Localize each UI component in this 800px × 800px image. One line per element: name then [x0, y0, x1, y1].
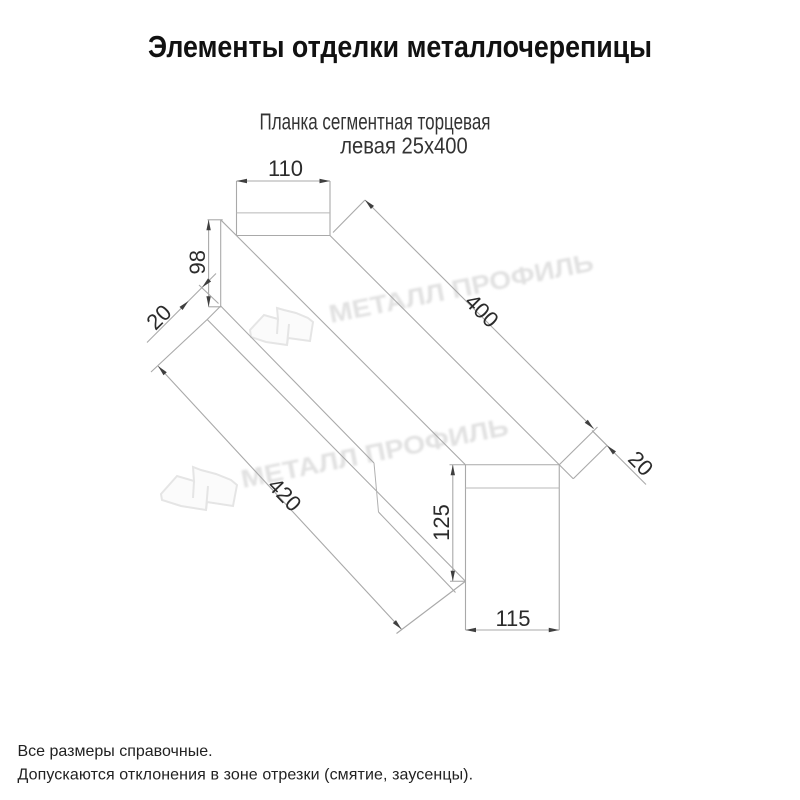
svg-text:115: 115: [495, 606, 530, 631]
svg-text:Все размеры справочные.: Все размеры справочные.: [18, 743, 213, 760]
svg-text:125: 125: [429, 504, 454, 541]
svg-text:110: 110: [268, 156, 303, 181]
svg-text:Элементы отделки металлочерепи: Элементы отделки металлочерепицы: [148, 29, 652, 64]
svg-text:Допускаются отклонения в зоне: Допускаются отклонения в зоне отрезки (с…: [18, 767, 474, 784]
svg-text:Планка сегментная торцевая: Планка сегментная торцевая: [260, 109, 491, 135]
svg-text:98: 98: [185, 250, 210, 274]
svg-text:левая 25х400: левая 25х400: [340, 133, 468, 159]
